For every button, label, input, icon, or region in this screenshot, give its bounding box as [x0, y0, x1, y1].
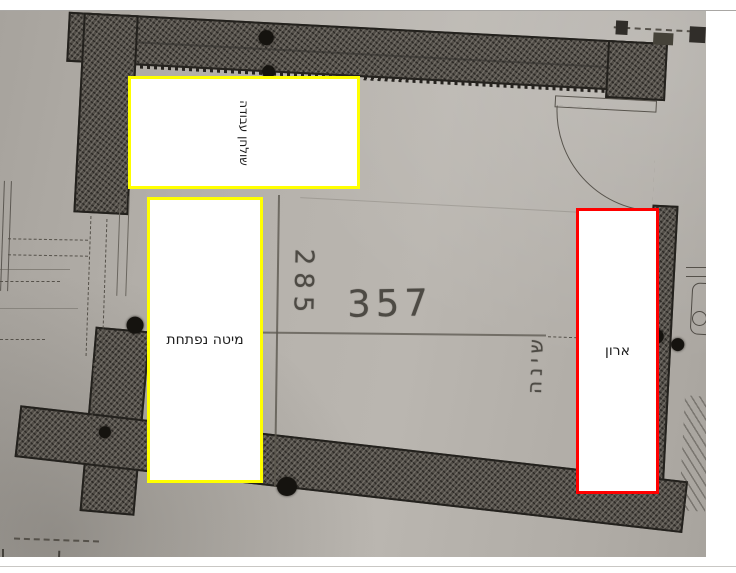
annotation-label-closet: ארון	[605, 343, 630, 359]
window-jamb-right	[689, 26, 706, 43]
screenshot-page: 285 357 שינה שולחן עבודה מיטה נפתחת ארון	[0, 0, 736, 573]
annotation-label-bed: מיטה נפתחת	[166, 332, 243, 348]
corner-bracket	[58, 551, 77, 557]
faint-line	[0, 269, 70, 270]
door-swing-arc	[551, 105, 657, 211]
annotation-box-desk[interactable]: שולחן עבודה	[128, 76, 360, 189]
window-block	[653, 32, 674, 45]
faint-line	[0, 308, 78, 309]
annotation-box-closet[interactable]: ארון	[576, 208, 659, 494]
dimension-285-label: 285	[287, 249, 318, 320]
dashed-line	[0, 281, 60, 282]
annotation-label-desk: שולחן עבודה	[237, 100, 251, 166]
window-jamb-left	[615, 20, 628, 35]
pen-mark	[277, 477, 297, 496]
sink-fixture	[690, 282, 706, 335]
wall-corner-top-right	[605, 40, 668, 101]
page-bottom-rule	[0, 566, 736, 567]
room-name-label: שינה	[520, 309, 550, 420]
dashed-line	[0, 339, 45, 340]
corner-bracket	[2, 549, 20, 557]
counter-lines	[686, 267, 706, 277]
dimension-357-label: 357	[345, 282, 436, 324]
faucet-circle	[692, 311, 706, 326]
annotation-box-bed[interactable]: מיטה נפתחת	[147, 197, 263, 483]
pen-mark	[671, 338, 685, 352]
